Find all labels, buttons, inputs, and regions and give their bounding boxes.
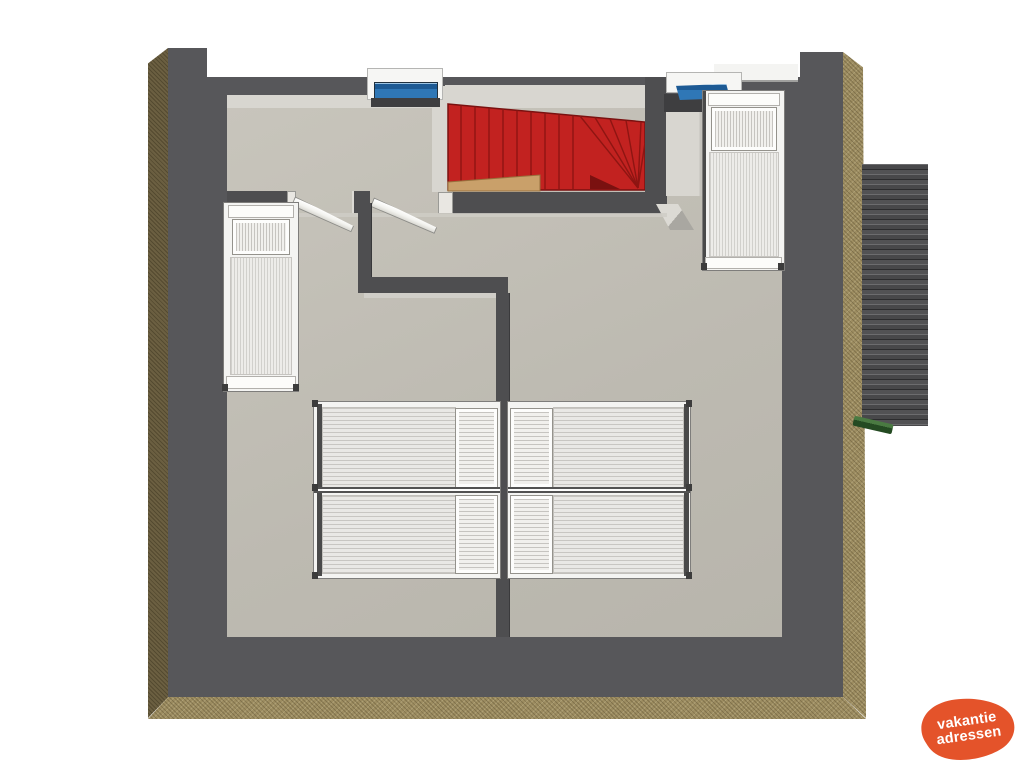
bed-bottom-right-lower-pillow xyxy=(511,496,552,573)
single-bed-right-mattress xyxy=(709,152,779,257)
wall-cut-edge-left xyxy=(148,48,168,718)
single-bed-left-footboard xyxy=(226,376,296,389)
bed-bottom-left-lower-mattress xyxy=(322,495,456,574)
single-bed-right-pillow xyxy=(712,108,776,150)
single-bed-left-headboard xyxy=(228,205,294,218)
wall-cut-edge-bottom xyxy=(148,697,866,719)
outer-wall-corner-top-left xyxy=(168,48,207,95)
bed-bottom-left-upper-mattress xyxy=(322,407,456,488)
single-bed-left-pillow xyxy=(233,220,289,254)
bed-post xyxy=(312,484,318,491)
bed-post xyxy=(701,263,707,270)
stairwell-wall-bottom xyxy=(438,192,667,214)
divider-wall-horizontal xyxy=(358,277,508,293)
skylight-left-sill xyxy=(371,98,440,107)
bed-bottom-right-upper-mattress xyxy=(553,407,684,488)
bed-bottom-left-lower-pillow xyxy=(456,496,497,573)
bed-post xyxy=(778,263,784,270)
bed-post xyxy=(686,484,692,491)
bed-post xyxy=(686,572,692,579)
bed-bottom-right-lower-mattress xyxy=(553,495,684,574)
bed-post xyxy=(312,400,318,407)
stair-treads-red xyxy=(448,104,645,190)
bed-post xyxy=(686,400,692,407)
bed-pair-bottom-left-mid-rail xyxy=(314,487,500,493)
outer-wall-bottom xyxy=(168,637,843,697)
roof-tile-section xyxy=(862,164,928,426)
outer-wall-right xyxy=(782,95,843,637)
bed-post xyxy=(312,572,318,579)
bed-bottom-right-upper-pillow xyxy=(511,409,552,487)
bed-pair-bottom-right-mid-rail xyxy=(508,487,690,493)
stairwell-north-face xyxy=(445,85,648,104)
bed-bottom-left-upper-pillow xyxy=(456,409,497,487)
divider-wall-vertical-upper xyxy=(358,203,372,283)
outer-wall-left xyxy=(168,95,227,637)
outer-wall-corner-top-right xyxy=(800,52,843,95)
single-bed-right-headboard xyxy=(708,93,780,106)
bed-post xyxy=(222,384,228,391)
single-bed-left-mattress xyxy=(230,257,292,375)
single-bed-right-shadow-edge xyxy=(703,91,706,270)
bed-post xyxy=(293,384,299,391)
skylight-left-glass xyxy=(375,83,437,99)
stairwell-wall-end-cap-left xyxy=(438,192,453,214)
divider-wall-skirting xyxy=(364,293,496,298)
floor-plan-render: vakantie adressen xyxy=(0,0,1024,768)
single-bed-right-footboard xyxy=(705,257,782,269)
